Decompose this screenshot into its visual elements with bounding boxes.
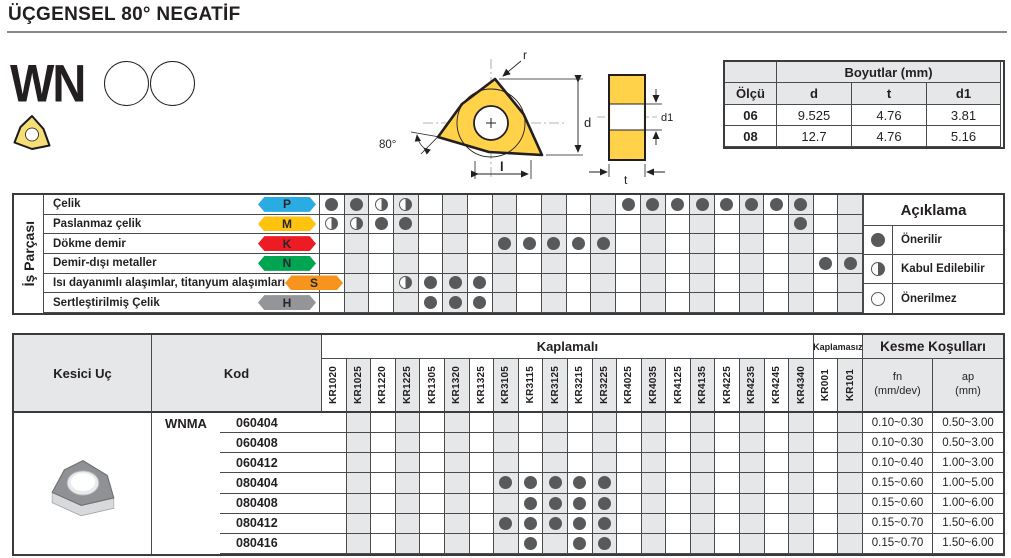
material-grade-cell	[814, 195, 839, 215]
grade-availability-cell	[371, 473, 396, 493]
recommended-dot	[646, 198, 659, 211]
grade-availability-cell	[494, 514, 519, 534]
grade-availability-cell	[642, 494, 667, 514]
t-value: 4.76	[852, 126, 927, 147]
grade-label: KR3115	[525, 366, 536, 403]
material-grade-cell	[369, 195, 394, 215]
material-grade-cell	[468, 254, 493, 274]
material-grade-cell	[641, 195, 666, 215]
grade-availability-cell	[691, 453, 716, 473]
grade-availability-cell	[838, 534, 863, 554]
grade-availability-cell	[396, 494, 421, 514]
material-grade-cell	[345, 254, 370, 274]
cutting-depth-cell: 1.50~6.00	[933, 514, 1003, 534]
grade-availability-cell	[568, 473, 593, 493]
iso-p-badge: P	[258, 197, 316, 212]
material-grade-cell	[419, 215, 444, 235]
grade-label: KR4025	[623, 366, 634, 404]
grade-availability-cell	[617, 413, 642, 433]
dimensions-table: Boyutlar (mm) Ölçü d t d1 06 9.525 4.76 …	[723, 60, 1005, 149]
material-grade-cell	[814, 215, 839, 235]
material-grade-cell	[641, 274, 666, 294]
grade-availability-cell	[666, 413, 691, 433]
grade-availability-cell	[740, 433, 765, 453]
grade-availability-cell	[519, 514, 544, 534]
material-row-p: ÇelikP	[44, 195, 320, 215]
material-grade-cell	[517, 274, 542, 294]
grade-availability-cell	[642, 413, 667, 433]
grade-availability-cell	[691, 494, 716, 514]
grade-label: KR101	[845, 369, 856, 401]
cutting-depth-cell: 1.50~6.00	[933, 534, 1003, 554]
material-grade-cell	[764, 195, 789, 215]
grade-availability-cell	[740, 473, 765, 493]
workpiece-side-label: İş Parçası	[14, 195, 44, 313]
recommended-dot	[696, 198, 709, 211]
recommended-dot	[819, 257, 832, 270]
trigon-insert-icon	[8, 112, 56, 156]
insert-code-cell: 080404	[220, 473, 322, 493]
material-grade-cell	[542, 195, 567, 215]
label-angle: 80°	[379, 139, 396, 151]
material-grade-cell	[517, 254, 542, 274]
grade-availability-cell	[445, 473, 470, 493]
material-grade-cell	[616, 195, 641, 215]
grade-column-header: KR3115	[519, 359, 544, 413]
recommended-dot	[547, 237, 560, 250]
grade-availability-cell	[814, 433, 839, 453]
grade-availability-cell	[445, 433, 470, 453]
recommended-dot	[844, 257, 857, 270]
material-grade-cell	[345, 293, 370, 313]
grade-availability-cell	[445, 534, 470, 554]
grade-availability-cell	[420, 514, 445, 534]
material-grade-cell	[345, 195, 370, 215]
grade-availability-cell	[838, 433, 863, 453]
grade-availability-cell	[838, 494, 863, 514]
grade-label: KR3105	[500, 366, 511, 404]
grade-column-header: KR1225	[396, 359, 421, 413]
available-dot	[573, 517, 586, 530]
cutting-depth-cell: 0.50~3.00	[933, 413, 1003, 433]
grade-availability-cell	[543, 534, 568, 554]
acceptable-dot	[399, 276, 412, 289]
style-circle-icon	[150, 61, 195, 106]
material-grade-cell	[443, 293, 468, 313]
acceptable-dot	[350, 217, 363, 230]
available-dot	[598, 476, 611, 489]
grade-availability-cell	[814, 494, 839, 514]
grade-availability-cell	[593, 453, 618, 473]
grade-availability-cell	[765, 514, 790, 534]
available-dot	[598, 537, 611, 550]
grade-availability-cell	[396, 514, 421, 534]
material-grade-cell	[542, 274, 567, 294]
grade-availability-cell	[470, 453, 495, 473]
grade-availability-cell	[470, 473, 495, 493]
grade-label: KR1305	[427, 366, 438, 404]
grade-availability-cell	[789, 514, 814, 534]
available-dot	[573, 476, 586, 489]
grade-availability-cell	[347, 534, 372, 554]
grade-availability-cell	[322, 413, 347, 433]
recommended-dot	[745, 198, 758, 211]
grade-availability-cell	[617, 453, 642, 473]
material-grade-cell	[838, 254, 863, 274]
grade-availability-cell	[814, 453, 839, 473]
material-grade-cell	[468, 274, 493, 294]
grade-availability-cell	[617, 433, 642, 453]
material-grade-cell	[591, 234, 616, 254]
grade-availability-cell	[642, 534, 667, 554]
grade-availability-cell	[642, 514, 667, 534]
recommended-dot	[473, 296, 486, 309]
grade-availability-cell	[396, 413, 421, 433]
series-prefix: WNMA	[152, 413, 220, 554]
material-grade-cell	[468, 215, 493, 235]
col-header-coated: Kaplamalı	[322, 335, 814, 359]
material-grade-cell	[715, 293, 740, 313]
grade-availability-cell	[494, 473, 519, 493]
material-grade-cell	[666, 274, 691, 294]
cutting-depth-cell: 1.00~3.00	[933, 453, 1003, 473]
iso-letter: N	[283, 256, 292, 270]
grade-availability-cell	[666, 433, 691, 453]
grade-availability-cell	[593, 473, 618, 493]
grade-availability-cell	[494, 534, 519, 554]
cutting-depth-cell: 1.00~6.00	[933, 494, 1003, 514]
grade-availability-cell	[568, 494, 593, 514]
grade-column-header: KR4340	[789, 359, 814, 413]
available-dot	[524, 497, 537, 510]
recommended-dot	[325, 198, 338, 211]
grade-availability-cell	[593, 433, 618, 453]
material-grade-cell	[666, 293, 691, 313]
grade-availability-cell	[347, 453, 372, 473]
d1-value: 5.16	[927, 126, 1001, 147]
material-grade-cell	[715, 254, 740, 274]
grade-availability-cell	[838, 413, 863, 433]
grade-availability-cell	[494, 453, 519, 473]
material-grade-cell	[443, 234, 468, 254]
insert-photo	[27, 437, 139, 529]
grade-availability-cell	[543, 473, 568, 493]
grade-availability-cell	[715, 413, 740, 433]
material-grade-cell	[616, 293, 641, 313]
feed-rate-cell: 0.10~0.30	[863, 413, 933, 433]
grade-availability-cell	[396, 453, 421, 473]
grade-availability-cell	[445, 494, 470, 514]
grade-availability-cell	[740, 494, 765, 514]
material-name: Çelik	[53, 198, 81, 210]
grade-availability-cell	[445, 514, 470, 534]
material-name: Paslanmaz çelik	[53, 218, 141, 230]
material-grade-cell	[789, 254, 814, 274]
material-grade-cell	[320, 195, 345, 215]
grade-availability-cell	[765, 433, 790, 453]
legend-title: Açıklama	[864, 195, 1003, 226]
material-grade-cell	[443, 254, 468, 274]
grade-availability-cell	[494, 494, 519, 514]
grade-availability-cell	[543, 494, 568, 514]
material-grade-cell	[591, 195, 616, 215]
iso-letter: P	[283, 197, 291, 211]
col-header-uncoated: Kaplamasız	[814, 335, 863, 359]
grade-availability-cell	[470, 534, 495, 554]
t-value: 4.76	[852, 105, 927, 126]
grade-availability-cell	[715, 473, 740, 493]
available-dot	[524, 476, 537, 489]
recommended-dot	[720, 198, 733, 211]
grade-availability-cell	[519, 433, 544, 453]
catalog-page: ÜÇGENSEL 80° NEGATİF WN r	[0, 0, 1011, 558]
grade-column-header: KR1305	[420, 359, 445, 413]
grade-availability-cell	[691, 433, 716, 453]
material-grade-cell	[468, 195, 493, 215]
grade-availability-cell	[617, 494, 642, 514]
material-row-h: Sertleştirilmiş ÇelikH	[44, 293, 320, 313]
recommended-dot	[498, 237, 511, 250]
grade-column-header: KR1325	[470, 359, 495, 413]
col-header-t: t	[852, 83, 927, 105]
material-grade-cell	[764, 293, 789, 313]
grade-label: KR3225	[599, 366, 610, 404]
recommended-dot	[523, 237, 536, 250]
material-suitability-table: İş Parçası ÇelikPPaslanmaz çelikMDökme d…	[12, 193, 1005, 315]
col-header-d: d	[777, 83, 852, 105]
material-name: Dökme demir	[53, 238, 126, 250]
grade-availability-cell	[420, 433, 445, 453]
grade-availability-cell	[740, 534, 765, 554]
grade-availability-cell	[347, 514, 372, 534]
material-grade-cell	[715, 234, 740, 254]
material-grade-cell	[666, 215, 691, 235]
grade-availability-cell	[568, 453, 593, 473]
grade-availability-cell	[691, 534, 716, 554]
material-grade-cell	[838, 215, 863, 235]
insert-code-cell: 080416	[220, 534, 322, 554]
grade-availability-cell	[371, 494, 396, 514]
col-header-insert: Kesici Uç	[14, 335, 152, 413]
material-grade-cell	[320, 215, 345, 235]
iso-k-badge: K	[258, 236, 316, 251]
grade-availability-cell	[396, 473, 421, 493]
cutting-depth-cell: 0.50~3.00	[933, 433, 1003, 453]
grade-availability-cell	[568, 433, 593, 453]
feed-rate-cell: 0.15~0.60	[863, 494, 933, 514]
feed-rate-cell: 0.10~0.30	[863, 433, 933, 453]
available-dot	[549, 497, 562, 510]
cutting-depth-cell: 1.00~5.00	[933, 473, 1003, 493]
grade-availability-cell	[814, 514, 839, 534]
material-grade-cell	[369, 254, 394, 274]
material-grade-cell	[641, 215, 666, 235]
recommended-dot	[770, 198, 783, 211]
grade-availability-cell	[543, 453, 568, 473]
grade-availability-cell	[543, 514, 568, 534]
grade-column-header: KR4235	[740, 359, 765, 413]
material-grade-cell	[764, 234, 789, 254]
grade-availability-cell	[347, 494, 372, 514]
recommended-dot	[597, 237, 610, 250]
material-grade-cell	[394, 293, 419, 313]
grade-availability-cell	[568, 413, 593, 433]
grade-label: KR1320	[451, 366, 462, 404]
grade-label: KR4225	[722, 366, 733, 404]
material-grade-cell	[517, 293, 542, 313]
grade-availability-cell	[593, 514, 618, 534]
grade-availability-cell	[789, 453, 814, 473]
grade-availability-cell	[470, 494, 495, 514]
grade-availability-cell	[789, 473, 814, 493]
grade-column-header: KR001	[814, 359, 839, 413]
material-grade-cell	[345, 234, 370, 254]
material-name: Isı dayanımlı alaşımlar, titanyum alaşım…	[53, 277, 285, 289]
material-grade-cell	[419, 293, 444, 313]
grade-availability-cell	[715, 534, 740, 554]
material-name: Demir-dışı metaller	[53, 257, 157, 269]
grade-availability-cell	[420, 473, 445, 493]
material-grade-cell	[394, 234, 419, 254]
insert-photo-cell	[14, 413, 152, 554]
recommended-dot	[622, 198, 635, 211]
grade-availability-cell	[494, 413, 519, 433]
material-grade-cell	[690, 195, 715, 215]
insert-shape-code: WN	[10, 52, 84, 114]
grade-availability-cell	[765, 473, 790, 493]
grade-column-header: KR101	[838, 359, 863, 413]
insert-code-cell: 060408	[220, 433, 322, 453]
material-grade-cell	[814, 274, 839, 294]
available-dot	[499, 476, 512, 489]
material-grade-cell	[591, 274, 616, 294]
legend-panel: Açıklama Önerilir Kabul Edilebilir Öneri…	[863, 195, 1003, 313]
grade-availability-cell	[642, 433, 667, 453]
material-grade-cell	[443, 215, 468, 235]
grade-availability-cell	[666, 473, 691, 493]
material-grade-cell	[567, 274, 592, 294]
material-grade-cell	[591, 254, 616, 274]
material-grade-cell	[690, 293, 715, 313]
available-dot	[573, 537, 586, 550]
style-circle-icon	[104, 61, 149, 106]
legend-item-not-recommended: Önerilmez	[864, 284, 1003, 313]
material-grade-cell	[443, 274, 468, 294]
material-grade-cell	[369, 234, 394, 254]
grade-availability-cell	[322, 433, 347, 453]
material-grade-cell	[369, 274, 394, 294]
material-grade-cell	[616, 234, 641, 254]
material-grade-cell	[345, 215, 370, 235]
grade-availability-cell	[789, 413, 814, 433]
material-grade-cell	[789, 195, 814, 215]
material-grade-cell	[493, 293, 518, 313]
grade-availability-cell	[617, 534, 642, 554]
material-grade-cell	[468, 293, 493, 313]
recommended-dot	[671, 198, 684, 211]
material-grade-cell	[419, 195, 444, 215]
grade-availability-cell	[740, 453, 765, 473]
material-grade-cell	[814, 234, 839, 254]
material-row-m: Paslanmaz çelikM	[44, 215, 320, 235]
recommended-dot	[424, 296, 437, 309]
grade-label: KR3125	[550, 366, 561, 404]
material-grade-cell	[493, 215, 518, 235]
grade-availability-cell	[666, 494, 691, 514]
grade-availability-cell	[691, 473, 716, 493]
material-grade-cell	[320, 234, 345, 254]
grade-availability-cell	[347, 473, 372, 493]
grade-label: KR4035	[648, 366, 659, 404]
grade-availability-cell	[838, 453, 863, 473]
grade-availability-cell	[396, 433, 421, 453]
material-grade-cell	[740, 293, 765, 313]
material-grade-cell	[394, 254, 419, 274]
feed-rate-cell: 0.15~0.70	[863, 534, 933, 554]
grade-availability-cell	[715, 433, 740, 453]
grade-availability-cell	[838, 514, 863, 534]
material-grade-cell	[542, 234, 567, 254]
grade-availability-cell	[666, 534, 691, 554]
col-header-code: Kod	[152, 335, 322, 413]
grade-label: KR1020	[328, 366, 339, 404]
grade-column-header: KR3125	[543, 359, 568, 413]
grade-availability-cell	[519, 494, 544, 514]
material-grade-cell	[443, 195, 468, 215]
grade-column-header: KR4025	[617, 359, 642, 413]
grade-availability-cell	[371, 534, 396, 554]
grade-availability-cell	[543, 433, 568, 453]
grades-table: Kesici Uç Kod Kaplamalı Kaplamasız Kesme…	[12, 333, 1005, 556]
material-grade-cell	[789, 215, 814, 235]
col-header-size: Ölçü	[725, 83, 777, 105]
grade-availability-cell	[765, 494, 790, 514]
d1-value: 3.81	[927, 105, 1001, 126]
grade-availability-cell	[470, 433, 495, 453]
grade-availability-cell	[691, 413, 716, 433]
half-circle-icon	[871, 262, 885, 276]
label-r: r	[523, 48, 527, 62]
insert-code-cell: 080412	[220, 514, 322, 534]
grade-availability-cell	[642, 473, 667, 493]
grade-availability-cell	[617, 514, 642, 534]
material-grade-cell	[715, 215, 740, 235]
grade-column-header: KR3105	[494, 359, 519, 413]
material-grade-cell	[394, 195, 419, 215]
grade-label: KR001	[820, 369, 831, 401]
grade-column-header: KR4225	[715, 359, 740, 413]
size-value: 06	[725, 105, 777, 126]
material-grade-cell	[838, 195, 863, 215]
grade-availability-cell	[519, 473, 544, 493]
grade-availability-cell	[715, 514, 740, 534]
dimensions-table-title: Boyutlar (mm)	[777, 62, 1001, 83]
iso-h-badge: H	[258, 295, 316, 310]
material-grade-cell	[838, 234, 863, 254]
insert-code-cell: 060412	[220, 453, 322, 473]
material-grade-cell	[591, 215, 616, 235]
grade-availability-cell	[789, 494, 814, 514]
material-grade-cell	[419, 234, 444, 254]
grade-availability-cell	[420, 494, 445, 514]
grade-column-header: KR1320	[445, 359, 470, 413]
grade-availability-cell	[420, 453, 445, 473]
grade-label: KR1225	[402, 366, 413, 404]
feed-rate-cell: 0.15~0.60	[863, 473, 933, 493]
material-grade-cell	[320, 254, 345, 274]
grade-label: KR1220	[377, 366, 388, 404]
material-grade-cell	[567, 234, 592, 254]
